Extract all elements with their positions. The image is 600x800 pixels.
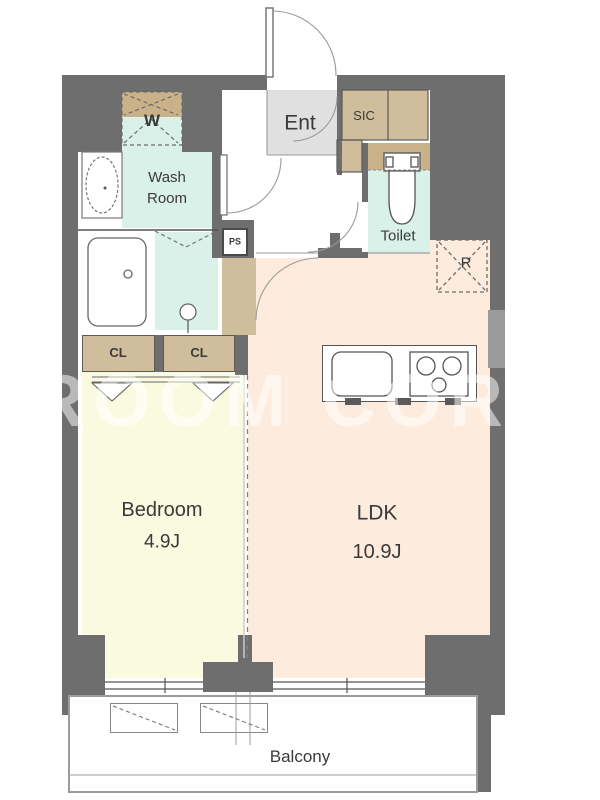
ldk-door — [256, 253, 318, 320]
closet-left-label: CL — [109, 344, 126, 362]
entry-door — [266, 8, 336, 77]
bath-folding-door — [155, 231, 217, 247]
refrigerator-label: R — [461, 253, 472, 274]
bedroom-window — [105, 678, 203, 693]
toilet-door — [308, 202, 368, 252]
kitchen-base-ticks — [345, 398, 461, 405]
toilet-label: Toilet — [380, 226, 415, 247]
kitchen-sink — [332, 352, 392, 396]
balcony-equipment-diagonals — [113, 706, 265, 730]
bedroom-name-label: Bedroom — [121, 496, 202, 524]
ldk-name-label: LDK — [357, 498, 398, 527]
ldk-size-label: 10.9J — [353, 538, 402, 566]
entrance-label: Ent — [284, 108, 316, 137]
balcony-label: Balcony — [270, 745, 330, 769]
sic-label: SIC — [353, 107, 375, 125]
floor-plan: W Wash Room Ent SIC Toilet PS R CL CL Be… — [0, 0, 600, 800]
vanity-sink — [82, 152, 122, 218]
closet-doors — [92, 377, 240, 401]
balcony-partition-lines — [236, 692, 250, 745]
washroom-label: Wash Room — [147, 167, 187, 209]
pipe-space-label: PS — [229, 236, 241, 249]
closet-right-label: CL — [190, 344, 207, 362]
bedroom-ldk-partition — [244, 375, 248, 658]
bedroom-size-label: 4.9J — [144, 530, 180, 557]
bathtub — [88, 238, 146, 326]
ldk-window — [273, 678, 425, 693]
washroom-door — [220, 155, 281, 215]
shower-drain — [180, 304, 196, 333]
kitchen-stove — [410, 352, 468, 396]
toilet-fixture — [384, 153, 420, 224]
washer-label: W — [144, 109, 160, 133]
